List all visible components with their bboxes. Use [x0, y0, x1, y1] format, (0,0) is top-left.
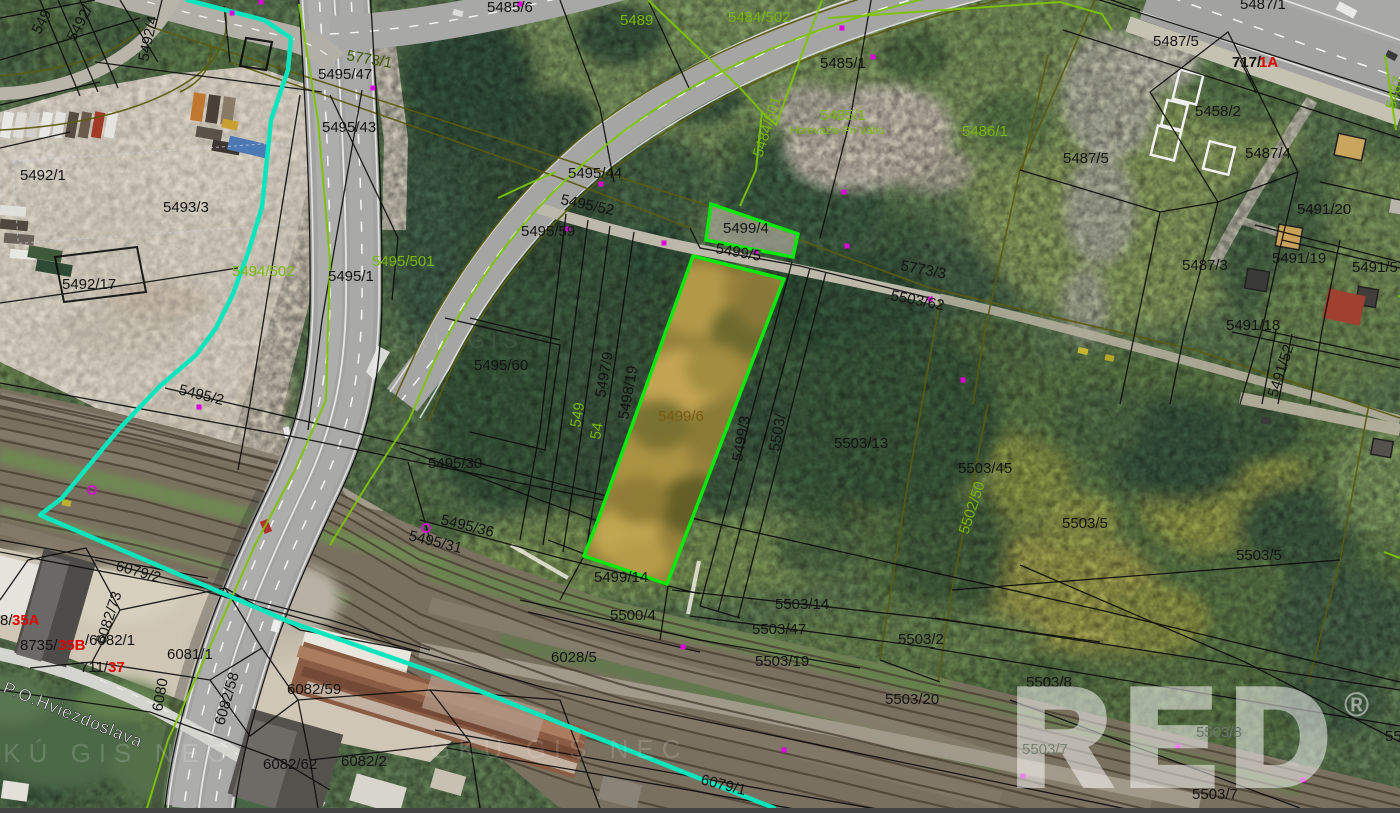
- svg-text:5503/19: 5503/19: [755, 653, 809, 670]
- svg-text:Horevažie Pri Váhu: Horevažie Pri Váhu: [790, 125, 885, 137]
- svg-text:5492/17: 5492/17: [62, 276, 116, 293]
- svg-text:5491/57: 5491/57: [1352, 259, 1400, 276]
- svg-text:5495/60: 5495/60: [474, 357, 528, 374]
- svg-text:5485/6: 5485/6: [487, 0, 533, 16]
- svg-text:6081/1: 6081/1: [167, 646, 213, 663]
- svg-text:35B: 35B: [58, 637, 86, 654]
- svg-text:5486/1: 5486/1: [962, 123, 1008, 140]
- svg-text:5495/501: 5495/501: [372, 253, 435, 270]
- svg-text:711/: 711/: [80, 659, 109, 676]
- svg-text:5487/1: 5487/1: [1240, 0, 1286, 13]
- svg-text:5503/2: 5503/2: [898, 631, 944, 648]
- svg-text:5487/5: 5487/5: [1063, 150, 1109, 167]
- svg-text:717/: 717/: [1232, 54, 1262, 71]
- svg-text:5492/1: 5492/1: [20, 167, 66, 184]
- svg-text:GKÚ GIS NEC: GKÚ GIS NEC: [430, 734, 688, 764]
- svg-text:6028/5: 6028/5: [551, 649, 597, 666]
- svg-text:54: 54: [587, 421, 607, 440]
- svg-text:5503/5: 5503/5: [1062, 515, 1108, 532]
- svg-text:6082/59: 6082/59: [287, 681, 341, 698]
- svg-text:5503/8: 5503/8: [1196, 724, 1242, 741]
- svg-text:5499/6: 5499/6: [658, 408, 704, 425]
- svg-text:5484/502: 5484/502: [728, 9, 791, 26]
- svg-text:GKÚ GIS: GKÚ GIS: [390, 328, 524, 353]
- svg-text:5499/4: 5499/4: [723, 220, 769, 237]
- svg-text:5491/18: 5491/18: [1226, 317, 1280, 334]
- svg-text:5485/1: 5485/1: [820, 107, 866, 124]
- svg-text:1A: 1A: [1259, 54, 1278, 71]
- svg-text:GKÚ GIS: GKÚ GIS: [1090, 132, 1224, 157]
- svg-text:35A: 35A: [12, 612, 40, 629]
- svg-text:RED: RED: [1012, 661, 1344, 808]
- svg-text:5489: 5489: [620, 12, 653, 29]
- svg-text:5493/3: 5493/3: [163, 199, 209, 216]
- svg-text:®: ®: [1344, 686, 1369, 724]
- svg-text:5503/20: 5503/20: [885, 691, 939, 708]
- svg-text:5495/47: 5495/47: [318, 66, 372, 83]
- svg-text:5503/14: 5503/14: [775, 596, 829, 613]
- svg-text:5499/14: 5499/14: [594, 569, 648, 586]
- svg-text:5503/7: 5503/7: [1022, 741, 1068, 758]
- svg-text:5503/45: 5503/45: [958, 460, 1012, 477]
- svg-text:5495/30: 5495/30: [428, 455, 482, 472]
- svg-text:5503/5: 5503/5: [1236, 547, 1282, 564]
- svg-text:5495/1: 5495/1: [328, 268, 374, 285]
- svg-text:5495/59: 5495/59: [521, 223, 575, 240]
- svg-text:5495/44: 5495/44: [568, 165, 622, 182]
- svg-text:5487/5: 5487/5: [1153, 33, 1199, 50]
- svg-text:37: 37: [108, 659, 125, 676]
- svg-text:/6082/1: /6082/1: [85, 632, 135, 649]
- svg-text:6082/2: 6082/2: [341, 753, 387, 770]
- svg-text:5491/19: 5491/19: [1272, 250, 1326, 267]
- svg-text:5503/: 5503/: [1385, 728, 1400, 745]
- svg-text:5494/502: 5494/502: [232, 263, 295, 280]
- svg-text:5485/1: 5485/1: [820, 55, 866, 72]
- svg-text:5503/47: 5503/47: [752, 621, 806, 638]
- svg-text:8735/: 8735/: [20, 637, 58, 654]
- svg-text:5458/2: 5458/2: [1195, 103, 1241, 120]
- svg-text:5495/43: 5495/43: [322, 119, 376, 136]
- svg-text:5500/4: 5500/4: [610, 607, 656, 624]
- svg-text:5503/13: 5503/13: [834, 435, 888, 452]
- svg-text:5491/20: 5491/20: [1297, 201, 1351, 218]
- svg-text:5487/3: 5487/3: [1182, 257, 1228, 274]
- svg-text:6082/62: 6082/62: [263, 756, 317, 773]
- svg-text:5487/4: 5487/4: [1245, 145, 1291, 162]
